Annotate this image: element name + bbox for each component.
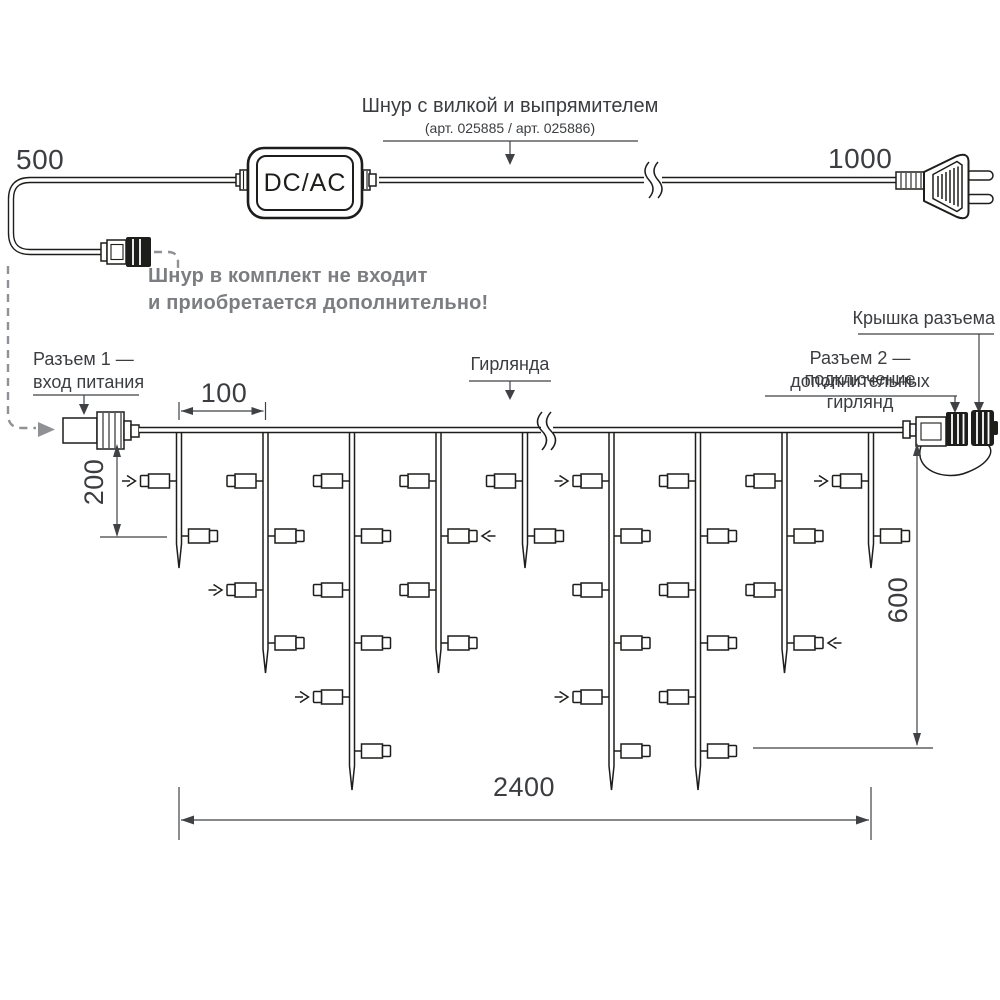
led-lamp-icon: [787, 636, 824, 650]
cap-label: Крышка разъема: [828, 308, 995, 329]
led-lamp-icon: [354, 529, 391, 543]
cord-connector-icon: [101, 237, 151, 267]
drops-layer: [122, 432, 910, 790]
led-lamp-icon: [400, 583, 437, 597]
connector-cap-icon: [971, 410, 998, 446]
led-lamp-icon: [660, 474, 697, 488]
led-lamp-icon: [268, 529, 305, 543]
led-lamp-icon: [354, 744, 391, 758]
led-lamp-icon: [527, 529, 564, 543]
connector1-icon: [63, 412, 139, 449]
led-lamp-icon: [487, 474, 524, 488]
flash-arrow-icon: [209, 585, 223, 596]
converter-label: DC/AC: [248, 148, 362, 218]
garland-drop: [227, 432, 304, 673]
flash-arrow-icon: [482, 531, 496, 542]
led-lamp-icon: [746, 583, 783, 597]
dimension-200-lines: [100, 444, 167, 537]
cable-break-icon: [645, 162, 662, 198]
flash-arrow-icon: [814, 476, 828, 487]
led-lamp-icon: [573, 583, 610, 597]
garland-drop: [141, 432, 218, 568]
flash-arrow-icon: [295, 692, 309, 703]
led-lamp-icon: [573, 690, 610, 704]
garland-leader: [469, 381, 551, 400]
garland-drop: [573, 432, 650, 790]
garland-label: Гирлянда: [460, 354, 560, 375]
led-lamp-icon: [700, 636, 737, 650]
dimension-1000-label: 1000: [828, 143, 892, 175]
led-lamp-icon: [873, 529, 910, 543]
led-lamp-icon: [833, 474, 870, 488]
connector1-label-line1: Разъем 1 —: [33, 349, 134, 370]
garland-drop: [400, 432, 477, 673]
connector1-label-line2: вход питания: [33, 372, 144, 393]
dashed-arrow-icon: [38, 422, 55, 437]
title-leader: [383, 141, 638, 165]
led-lamp-icon: [700, 744, 737, 758]
led-lamp-icon: [314, 474, 351, 488]
note-line1: Шнур в комплект не входит: [148, 265, 428, 288]
dimension-2400-label: 2400: [471, 772, 577, 803]
led-lamp-icon: [614, 744, 651, 758]
led-lamp-icon: [441, 636, 478, 650]
dimension-200-label: 200: [79, 447, 109, 517]
led-lamp-icon: [746, 474, 783, 488]
led-lamp-icon: [181, 529, 218, 543]
led-lamp-icon: [268, 636, 305, 650]
garland-drop: [487, 432, 564, 568]
diagram-page: 500 1000 Шнур с вилкой и выпрямителем (а…: [0, 0, 1000, 1000]
led-lamp-icon: [614, 529, 651, 543]
plug-prong: [966, 171, 993, 180]
led-lamp-icon: [227, 583, 264, 597]
garland-drop: [660, 432, 737, 790]
power-cord-group: [11, 162, 898, 274]
led-lamp-icon: [354, 636, 391, 650]
led-lamp-icon: [227, 474, 264, 488]
note-line2: и приобретается дополнительно!: [148, 292, 488, 315]
cap-tether-wire: [920, 443, 991, 476]
led-lamp-icon: [660, 690, 697, 704]
led-lamp-icon: [441, 529, 478, 543]
dimension-500-label: 500: [16, 144, 64, 176]
plug-prong: [966, 195, 993, 204]
led-lamp-icon: [614, 636, 651, 650]
dimension-600-label: 600: [883, 565, 913, 635]
led-lamp-icon: [787, 529, 824, 543]
led-lamp-icon: [700, 529, 737, 543]
garland-drop: [746, 432, 823, 673]
led-lamp-icon: [660, 583, 697, 597]
led-lamp-icon: [573, 474, 610, 488]
led-lamp-icon: [141, 474, 178, 488]
garland-drop: [833, 432, 910, 568]
led-lamp-icon: [314, 690, 351, 704]
flash-arrow-icon: [555, 476, 569, 487]
led-lamp-icon: [400, 474, 437, 488]
dimension-100-label: 100: [196, 378, 252, 409]
title-line2: (арт. 025885 / арт. 025886): [355, 120, 665, 136]
flash-arrow-icon: [828, 638, 842, 649]
euro-plug-icon: [896, 155, 993, 218]
title-line1: Шнур с вилкой и выпрямителем: [355, 95, 665, 118]
led-lamp-icon: [314, 583, 351, 597]
flash-arrow-icon: [555, 692, 569, 703]
garland-drop: [314, 432, 391, 790]
connector2-label-line2: дополнительных гирлянд: [762, 371, 958, 413]
flash-arrow-icon: [122, 476, 136, 487]
